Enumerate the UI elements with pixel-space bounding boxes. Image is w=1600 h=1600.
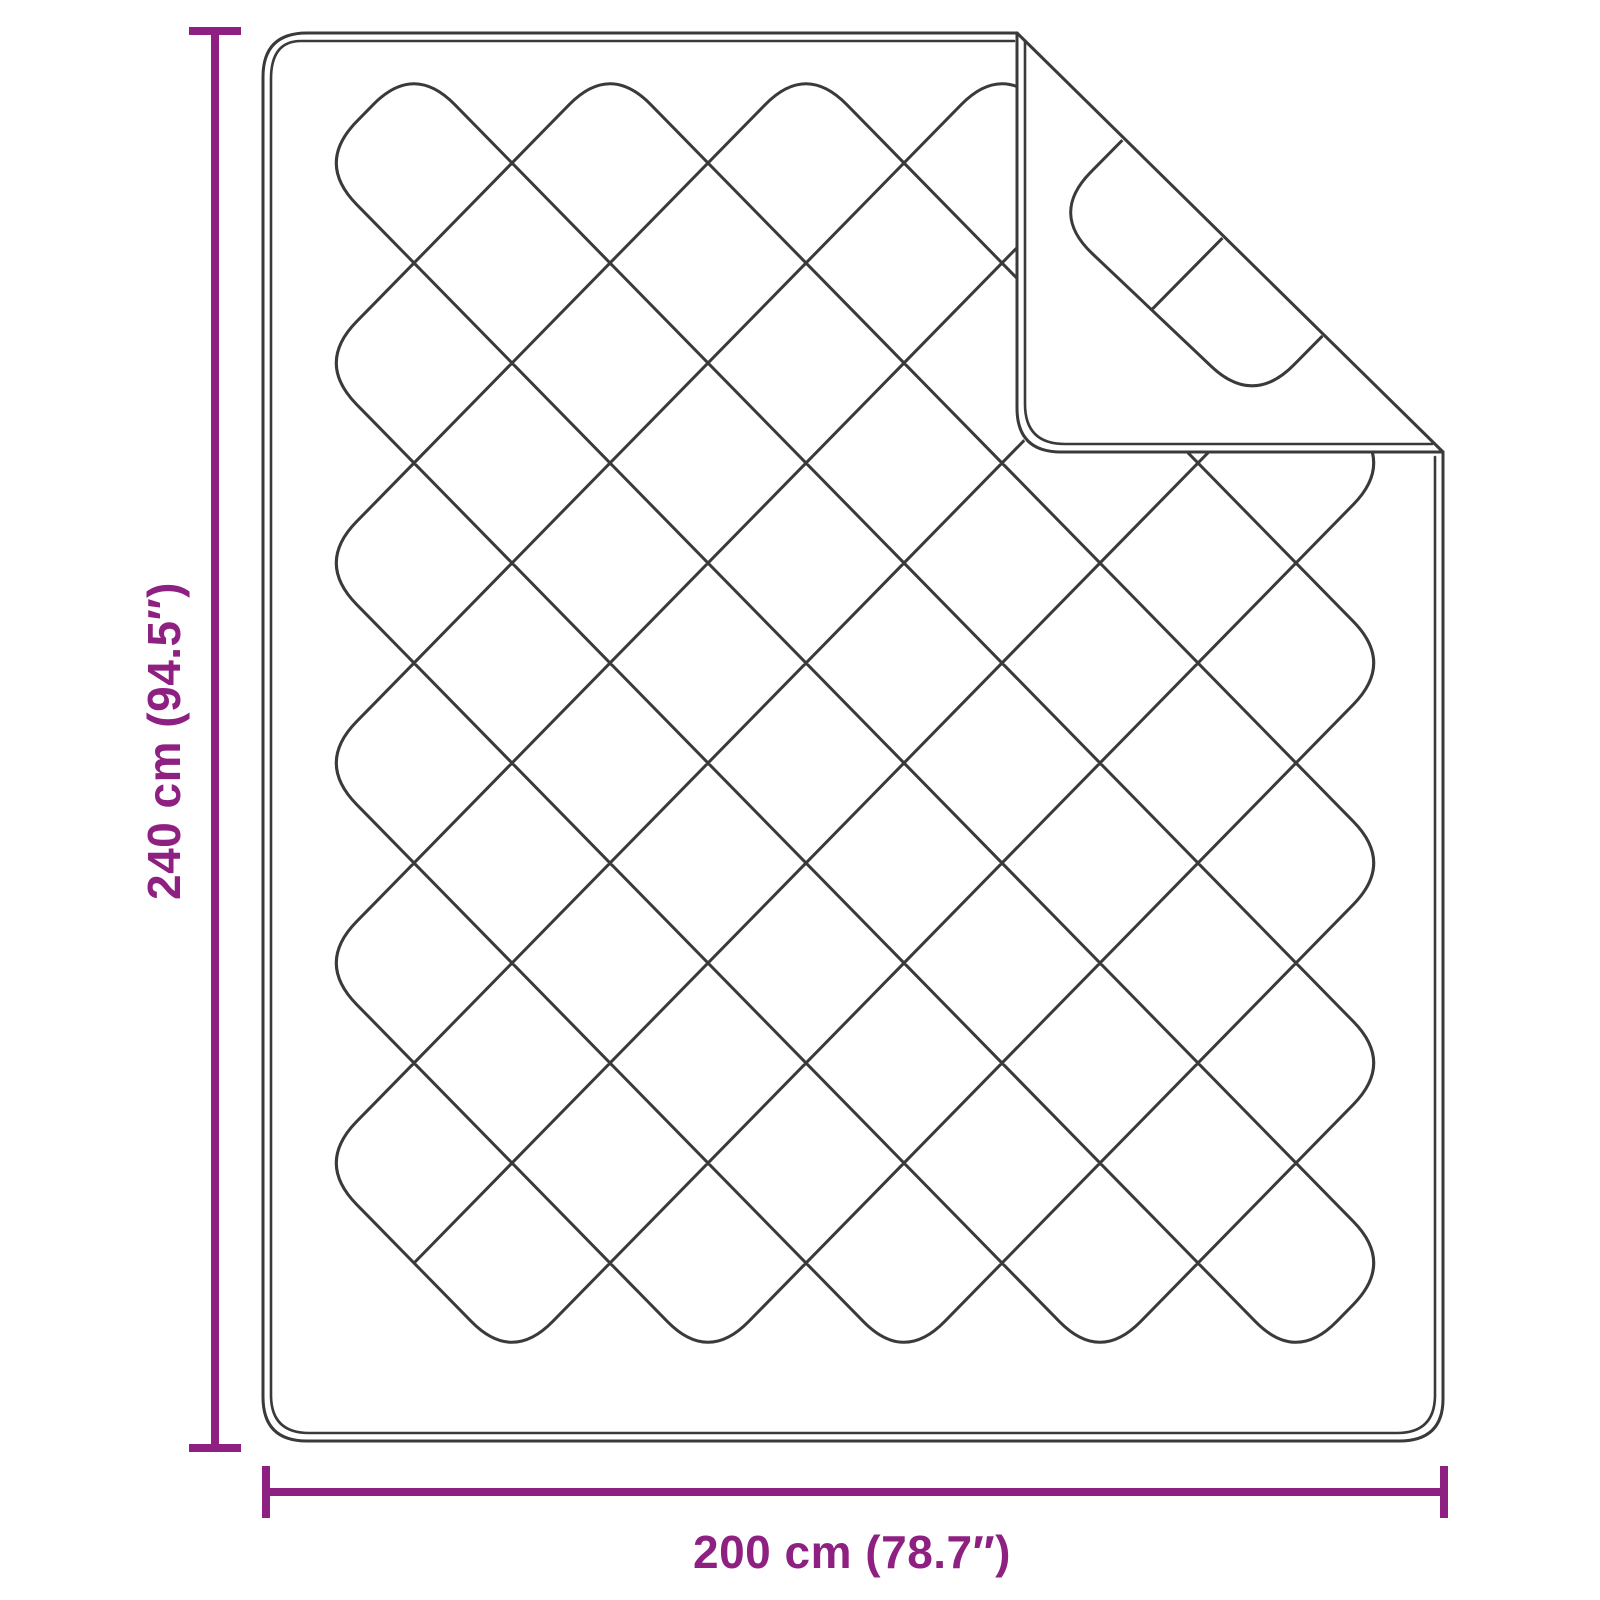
height-dimension-line bbox=[189, 27, 241, 1452]
dimension-diagram-page: 240 cm (94.5″) 200 cm (78.7″) bbox=[0, 0, 1600, 1600]
width-dimension-cap-right bbox=[1440, 1466, 1448, 1518]
height-dimension-bar bbox=[211, 29, 219, 1450]
height-dimension-cap-bottom bbox=[189, 1444, 241, 1452]
width-dimension-bar bbox=[263, 1488, 1447, 1496]
blanket-dimension-diagram: 240 cm (94.5″) 200 cm (78.7″) bbox=[0, 0, 1600, 1600]
height-dimension-label: 240 cm (94.5″) bbox=[138, 582, 190, 900]
blanket-outline bbox=[263, 33, 1443, 1441]
width-dimension-label: 200 cm (78.7″) bbox=[693, 1526, 1011, 1578]
width-dimension-cap-left bbox=[262, 1466, 270, 1518]
height-dimension-cap-top bbox=[189, 27, 241, 35]
width-dimension-line bbox=[262, 1466, 1448, 1518]
